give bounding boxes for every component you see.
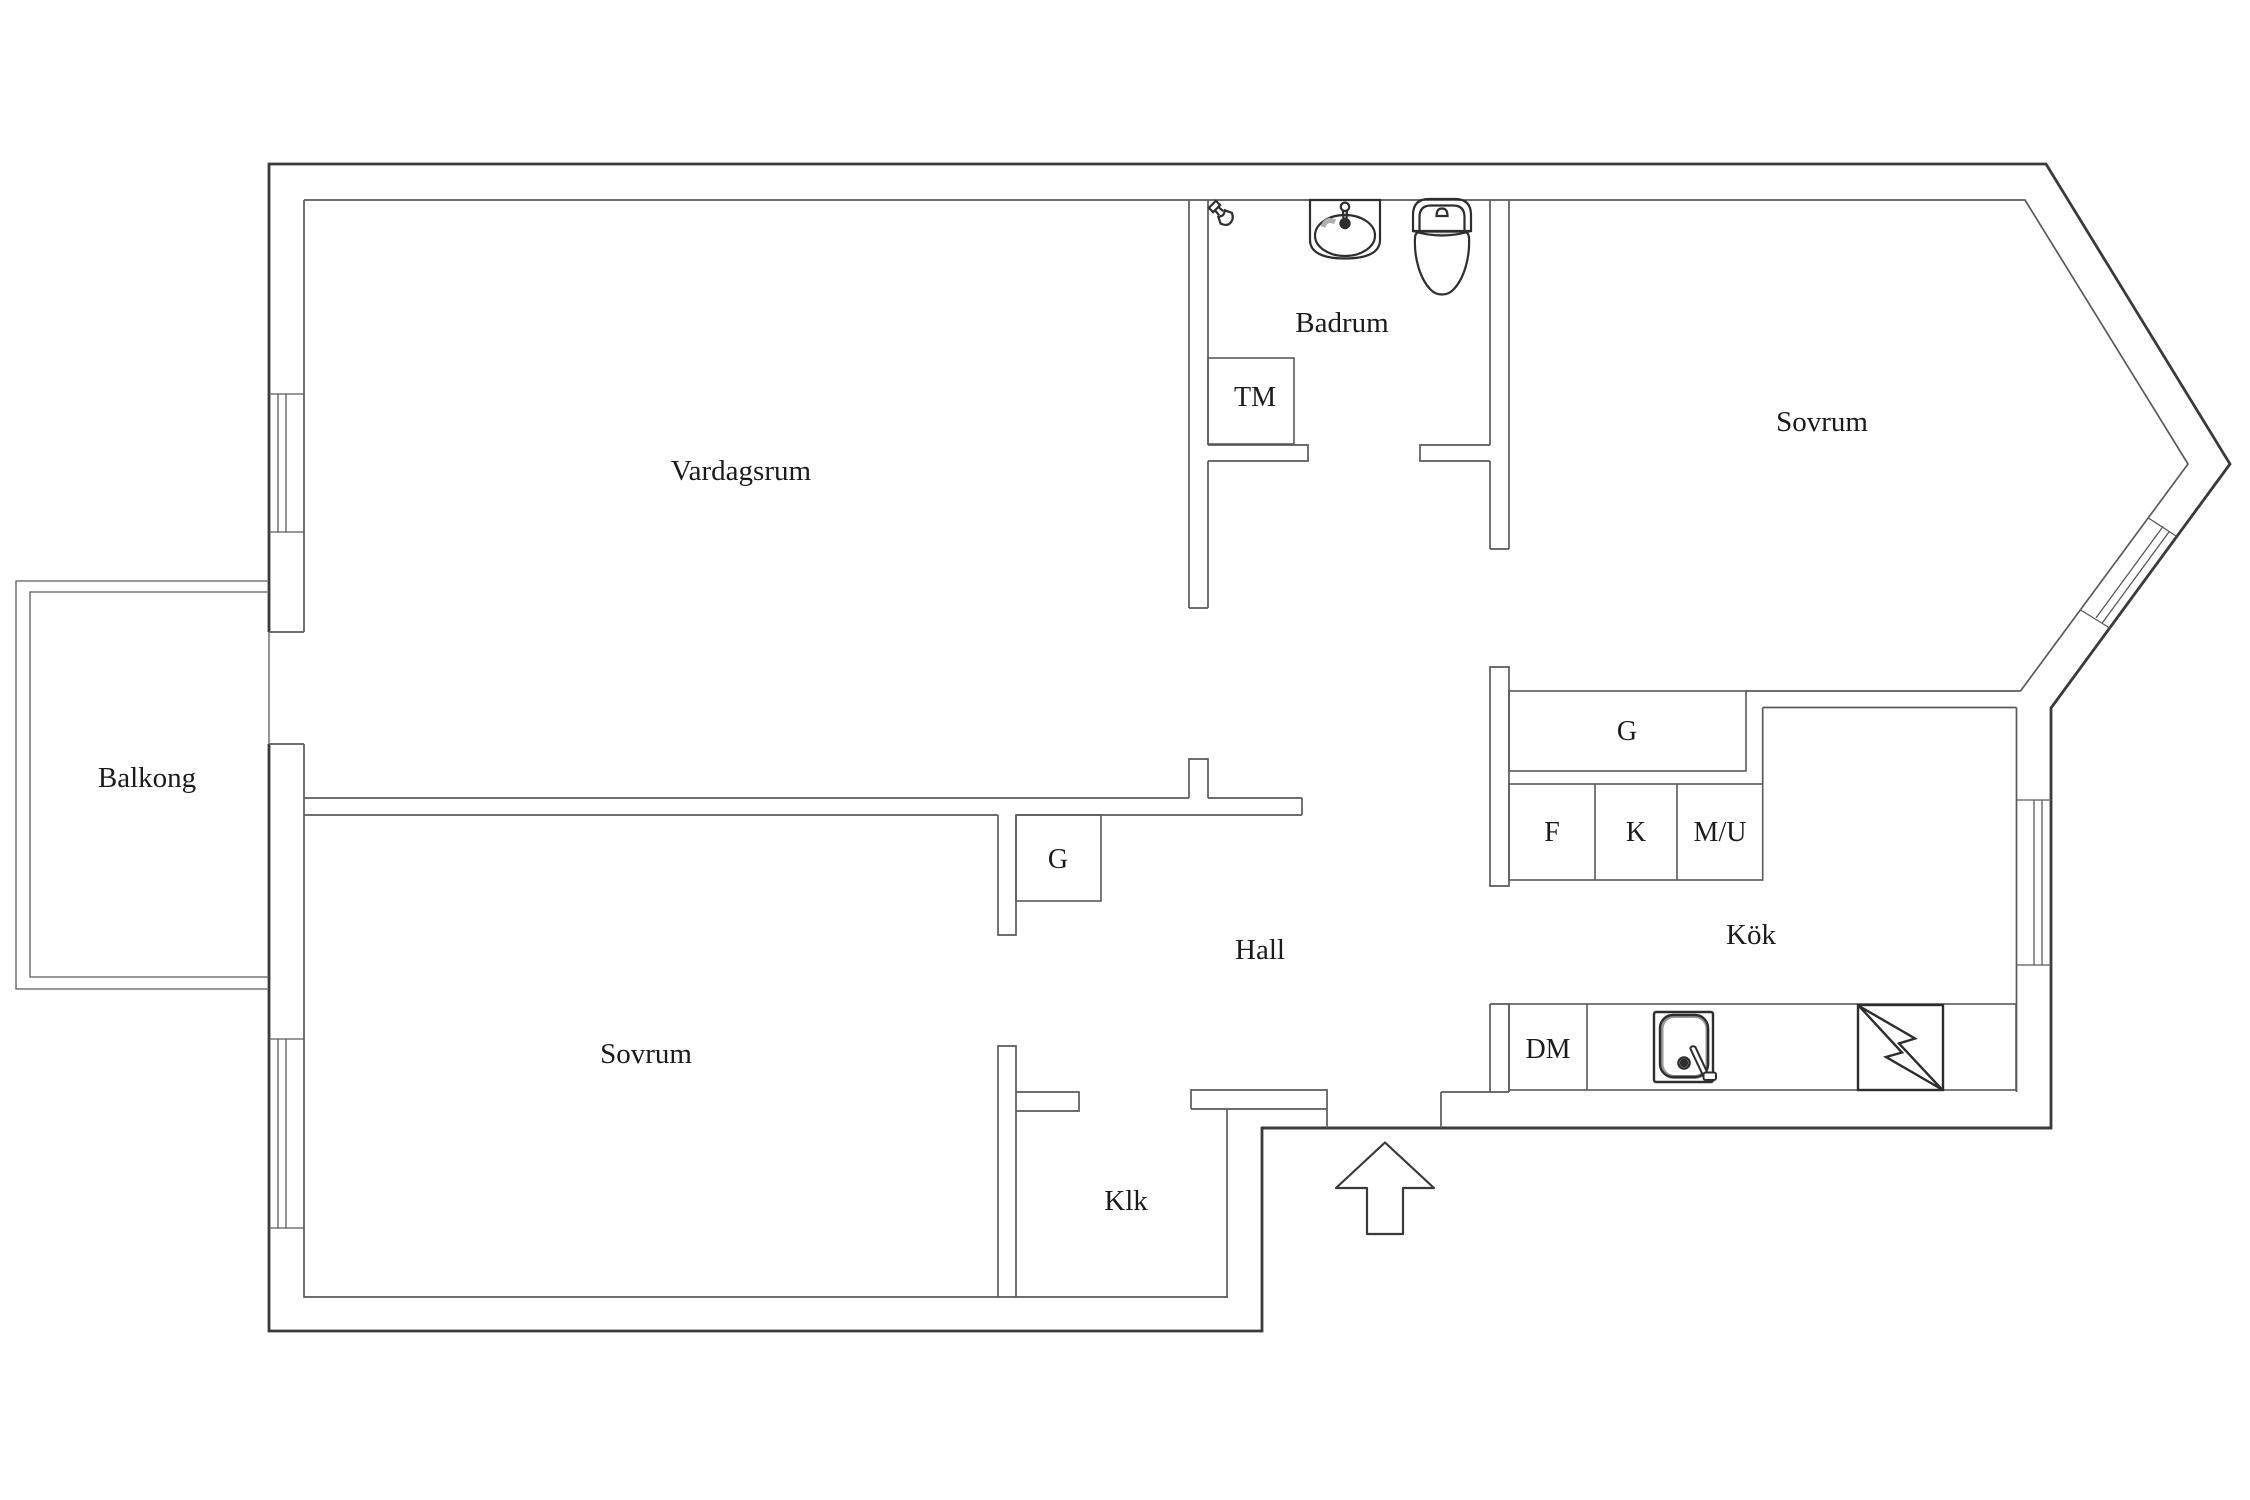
svg-text:K: K <box>1626 817 1646 848</box>
svg-text:Sovrum: Sovrum <box>1776 406 1868 438</box>
svg-text:Balkong: Balkong <box>98 762 196 794</box>
svg-text:Sovrum: Sovrum <box>600 1038 692 1070</box>
svg-text:M/U: M/U <box>1694 817 1747 848</box>
svg-text:Kök: Kök <box>1726 919 1776 951</box>
svg-text:DM: DM <box>1525 1034 1570 1065</box>
svg-text:Badrum: Badrum <box>1295 307 1389 339</box>
svg-text:TM: TM <box>1234 382 1276 413</box>
svg-text:Vardagsrum: Vardagsrum <box>671 455 812 487</box>
svg-text:Klk: Klk <box>1104 1185 1148 1217</box>
svg-text:F: F <box>1544 817 1560 848</box>
svg-text:G: G <box>1048 844 1068 875</box>
svg-text:G: G <box>1617 716 1637 747</box>
svg-text:Hall: Hall <box>1235 934 1285 966</box>
